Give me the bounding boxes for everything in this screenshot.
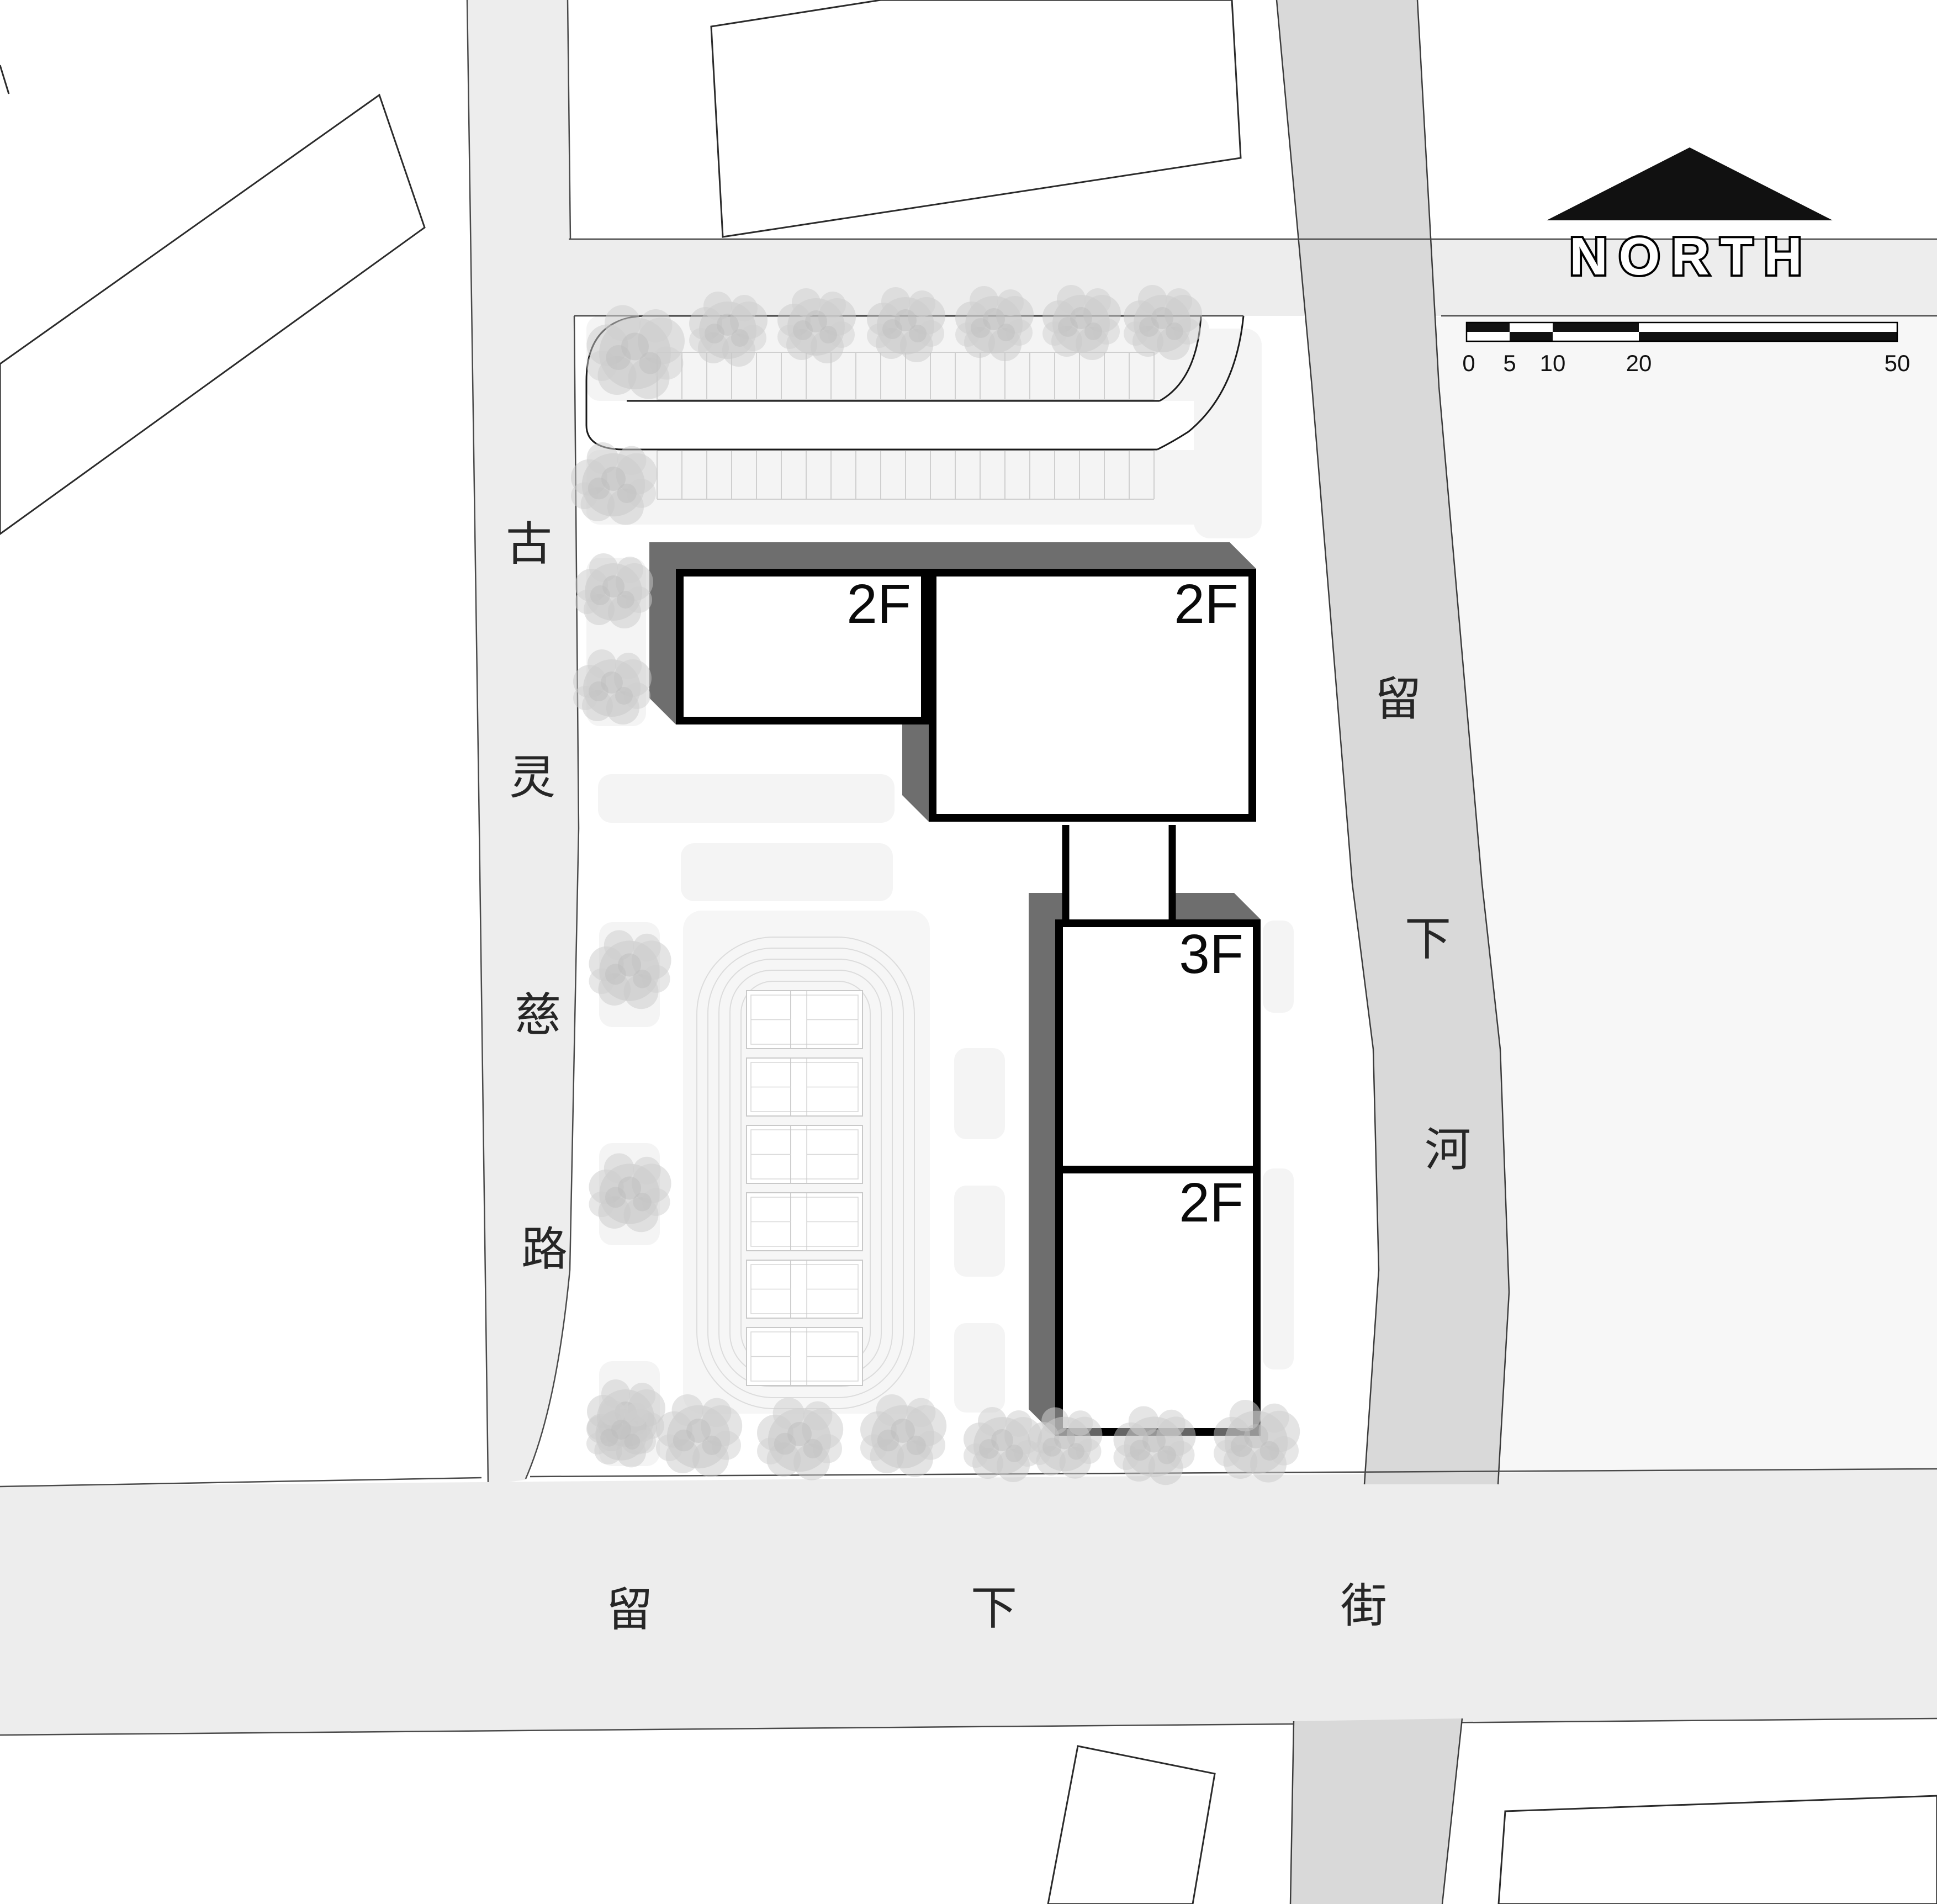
lawn-middle-2 (681, 843, 893, 901)
west-road-label-char: 路 (521, 1223, 568, 1275)
lawn-court-2 (954, 1186, 1005, 1277)
north-label: NORTH (1569, 227, 1813, 286)
central-garden (683, 911, 930, 1414)
parking-stalls (657, 352, 1154, 499)
garden-planter (747, 1058, 862, 1116)
west-road-label-char: 灵 (509, 752, 555, 803)
lawn-east-1 (1263, 921, 1294, 1013)
floor-label-south: 2F (1179, 1172, 1243, 1234)
garden-planter (747, 1125, 862, 1183)
lawn-middle-1 (598, 774, 895, 823)
site-plan-canvas: 2F 2F 3F 2F 古 灵 慈 路 留 下 河 留 下 街 NORTH 0 … (0, 0, 1937, 1904)
river-south-segment (1290, 1718, 1462, 1904)
link-corridor (1066, 825, 1172, 923)
neighbor-building-south-1 (1048, 1746, 1215, 1904)
river-label-char: 下 (1405, 913, 1451, 965)
south-street-label-char: 街 (1341, 1580, 1387, 1632)
south-street (0, 1469, 1937, 1735)
floor-label-northeast: 2F (1174, 573, 1239, 635)
neighbor-building-north (711, 0, 1241, 237)
garden-planter (747, 1193, 862, 1251)
lawn-entry (1194, 329, 1262, 538)
neighbor-building-northwest (0, 95, 425, 534)
floor-label-middle: 3F (1179, 923, 1243, 985)
parking-lawn-strip-2 (586, 450, 1209, 525)
south-street-label-char: 下 (971, 1582, 1017, 1634)
north-indicator: NORTH (1547, 147, 1833, 286)
scale-tick: 0 (1462, 350, 1475, 376)
south-street-label-char: 留 (606, 1584, 653, 1636)
river-label-char: 河 (1425, 1124, 1471, 1176)
river-label-char: 留 (1375, 673, 1421, 725)
lawn-court-3 (954, 1323, 1005, 1413)
scale-tick: 10 (1540, 350, 1566, 376)
lawn-east-2 (1263, 1168, 1294, 1369)
lawn-court-1 (954, 1048, 1005, 1139)
west-road-label-char: 古 (506, 518, 552, 570)
scale-tick: 20 (1626, 350, 1652, 376)
floor-label-northwest: 2F (846, 573, 911, 635)
tree-icon (656, 1394, 742, 1477)
garden-planter (747, 991, 862, 1049)
garden-planter (747, 1327, 862, 1385)
shadow-northeast-step (902, 724, 929, 822)
neighbor-building-south-2 (1499, 1796, 1937, 1904)
site-plan-drawing: 2F 2F 3F 2F 古 灵 慈 路 留 下 河 留 下 街 NORTH 0 … (0, 0, 1937, 1904)
north-arrow-icon (1547, 147, 1833, 220)
garden-planter (747, 1260, 862, 1318)
scale-tick: 5 (1503, 350, 1516, 376)
scale-tick: 50 (1885, 350, 1910, 376)
west-road-label-char: 慈 (515, 989, 561, 1041)
neighbor-building-fragment (0, 65, 9, 94)
